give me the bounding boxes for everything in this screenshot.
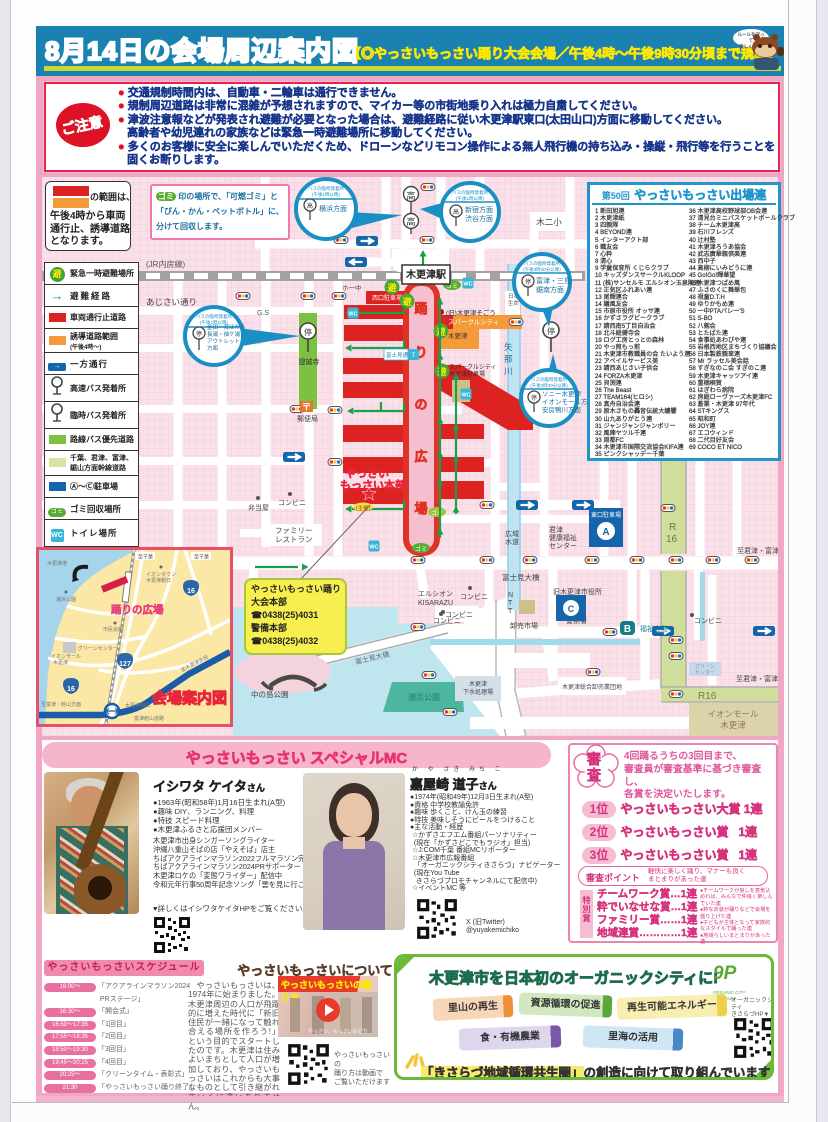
svg-text:高: 高 [307, 202, 313, 210]
svg-text:市民会館: 市民会館 [103, 626, 123, 633]
svg-text:停: 停 [531, 394, 537, 402]
svg-text:バスの臨時発着所: バスの臨時発着所 [524, 260, 560, 267]
svg-text:コンビニ: コンビニ [460, 592, 488, 601]
svg-text:やっさい: やっさい [345, 467, 389, 480]
svg-text:ファミリー: ファミリー [275, 526, 313, 535]
svg-text:レストラン: レストラン [275, 535, 313, 544]
svg-text:至君津・富津: 至君津・富津 [736, 674, 778, 683]
svg-text:君津: 君津 [549, 526, 563, 534]
svg-text:矢: 矢 [504, 342, 513, 352]
svg-text:ゴミ: ゴミ [431, 509, 443, 517]
svg-text:バスの臨時発着所: バスの臨時発着所 [452, 189, 488, 196]
svg-text:方面: 方面 [207, 344, 219, 352]
svg-text:(旧)木更津そごう: (旧)木更津そごう [446, 308, 496, 317]
svg-text:避: 避 [436, 326, 446, 337]
svg-text:場: 場 [414, 501, 427, 516]
svg-text:R: R [669, 522, 676, 533]
svg-text:T: T [508, 608, 513, 615]
svg-text:バスの臨時発着所: バスの臨時発着所 [531, 376, 567, 383]
svg-text:木更津朝日: 木更津朝日 [146, 577, 171, 584]
svg-text:木更津南IC: 木更津南IC [125, 702, 150, 709]
svg-text:コンビニ: コンビニ [278, 498, 306, 507]
svg-text:木更津: 木更津 [448, 331, 468, 340]
svg-text:(午後3時30分以降): (午後3時30分以降) [523, 266, 561, 273]
svg-text:潮浜公園: 潮浜公園 [56, 596, 76, 603]
svg-text:(午後3時30分以降): (午後3時30分以降) [530, 382, 568, 389]
svg-text:富津館山道路: 富津館山道路 [134, 715, 164, 722]
svg-text:金田・海ほたる: 金田・海ほたる [207, 323, 246, 331]
svg-text:イオンモール: イオンモール [707, 709, 759, 719]
svg-text:C: C [568, 604, 575, 614]
svg-text:もっさい本部: もっさい本部 [340, 478, 406, 492]
svg-text:ホ一中: ホ一中 [342, 283, 362, 292]
svg-text:スパークルシティ: スパークルシティ [449, 364, 496, 371]
svg-text:127: 127 [119, 661, 131, 668]
svg-text:グリーンセンター: グリーンセンター [78, 645, 118, 652]
svg-text:イオンタウン: イオンタウン [146, 571, 176, 578]
svg-text:KISARAZU: KISARAZU [418, 600, 453, 607]
svg-text:高: 高 [453, 208, 459, 216]
svg-text:停: 停 [547, 326, 555, 336]
svg-text:コンビニ: コンビニ [694, 616, 722, 625]
svg-text:グリーン: グリーン [695, 663, 715, 670]
svg-text:生命: 生命 [508, 299, 520, 307]
svg-text:センター: センター [549, 541, 577, 550]
svg-text:T: T [508, 600, 513, 607]
svg-text:〒: 〒 [302, 402, 311, 412]
svg-text:木更津: 木更津 [53, 659, 68, 666]
svg-text:木二小: 木二小 [536, 217, 562, 227]
svg-text:N: N [508, 592, 513, 599]
svg-text:東口駐車場: 東口駐車場 [591, 511, 621, 519]
svg-text:停: 停 [304, 327, 312, 337]
svg-text:證誠寺: 證誠寺 [299, 357, 320, 366]
svg-text:木更津: 木更津 [720, 720, 746, 730]
svg-text:至君津・富津: 至君津・富津 [737, 546, 778, 555]
svg-text:旧木更津市役所: 旧木更津市役所 [553, 587, 602, 596]
svg-text:潮浜公園: 潮浜公園 [408, 692, 440, 702]
svg-text:福祉会館: 福祉会館 [640, 624, 668, 633]
svg-text:16: 16 [187, 588, 195, 595]
svg-text:広域: 広域 [505, 529, 519, 538]
svg-text:バスの臨時発着所: バスの臨時発着所 [308, 185, 344, 192]
svg-text:鋸南方面: 鋸南方面 [536, 285, 564, 294]
svg-text:下水処理場: 下水処理場 [463, 688, 493, 696]
svg-text:木更津総合卸売業団地: 木更津総合卸売業団地 [562, 683, 622, 691]
svg-text:川: 川 [504, 366, 513, 376]
svg-text:弁当屋: 弁当屋 [248, 503, 269, 512]
svg-text:コンビニ: コンビニ [433, 616, 461, 625]
svg-text:高: 高 [406, 216, 415, 227]
svg-text:渋谷方面: 渋谷方面 [465, 214, 493, 223]
svg-text:高: 高 [406, 190, 415, 201]
svg-text:16: 16 [666, 534, 678, 545]
svg-text:水道: 水道 [505, 537, 519, 546]
svg-text:(午後1時以降): (午後1時以降) [312, 191, 341, 198]
svg-text:健康福祉: 健康福祉 [549, 533, 577, 542]
svg-text:ソニー木更津: ソニー木更津 [542, 389, 582, 398]
svg-text:T: T [412, 353, 416, 359]
svg-text:16: 16 [67, 686, 75, 693]
svg-text:富津・三島: 富津・三島 [536, 276, 571, 285]
svg-text:エルシオン: エルシオン [418, 590, 453, 598]
svg-text:那: 那 [504, 354, 513, 364]
svg-text:新宿方面: 新宿方面 [465, 205, 493, 214]
svg-text:停: 停 [196, 330, 202, 338]
svg-text:(午後1時以降): (午後1時以降) [456, 195, 485, 202]
svg-text:卸売市場: 卸売市場 [510, 621, 538, 630]
svg-text:長浦・袖ケ浦: 長浦・袖ケ浦 [207, 330, 241, 338]
svg-text:スパークルシティ: スパークルシティ [448, 318, 499, 326]
svg-text:安房鴨川方面: 安房鴨川方面 [542, 405, 582, 414]
svg-text:踊りの広場: 踊りの広場 [111, 603, 164, 616]
svg-text:富士見大橋: 富士見大橋 [502, 572, 540, 582]
svg-text:郵便局: 郵便局 [297, 414, 318, 423]
svg-text:木更津: 木更津 [469, 680, 487, 688]
svg-text:ゴミ: ゴミ [415, 545, 427, 553]
svg-text:センター: センター [695, 669, 715, 676]
svg-text:木更津港: 木更津港 [47, 560, 67, 567]
svg-text:広: 広 [414, 449, 427, 464]
svg-text:バスの臨時発着所: バスの臨時発着所 [196, 313, 232, 320]
svg-text:R16: R16 [698, 691, 717, 702]
svg-text:停: 停 [525, 278, 531, 286]
svg-text:アウトレット: アウトレット [207, 337, 240, 345]
svg-text:西口駐車場: 西口駐車場 [372, 294, 402, 302]
svg-text:至富津・館山方面: 至富津・館山方面 [41, 701, 81, 708]
svg-text:至千葉: 至千葉 [138, 554, 153, 561]
svg-text:の: の [414, 397, 427, 412]
svg-text:避: 避 [387, 282, 397, 293]
svg-text:G.S: G.S [257, 310, 269, 317]
svg-text:中の島公園: 中の島公園 [251, 689, 289, 699]
svg-text:木更津駅: 木更津駅 [405, 268, 447, 281]
svg-text:(主催): (主催) [356, 504, 371, 512]
svg-text:(JR内房線): (JR内房線) [146, 259, 185, 269]
svg-text:横浜方面: 横浜方面 [319, 204, 347, 213]
svg-text:至千葉: 至千葉 [194, 554, 209, 561]
svg-text:あじさい通り: あじさい通り [146, 297, 197, 307]
svg-text:A: A [602, 527, 609, 538]
svg-text:踊: 踊 [414, 301, 427, 316]
svg-text:B: B [624, 624, 631, 635]
